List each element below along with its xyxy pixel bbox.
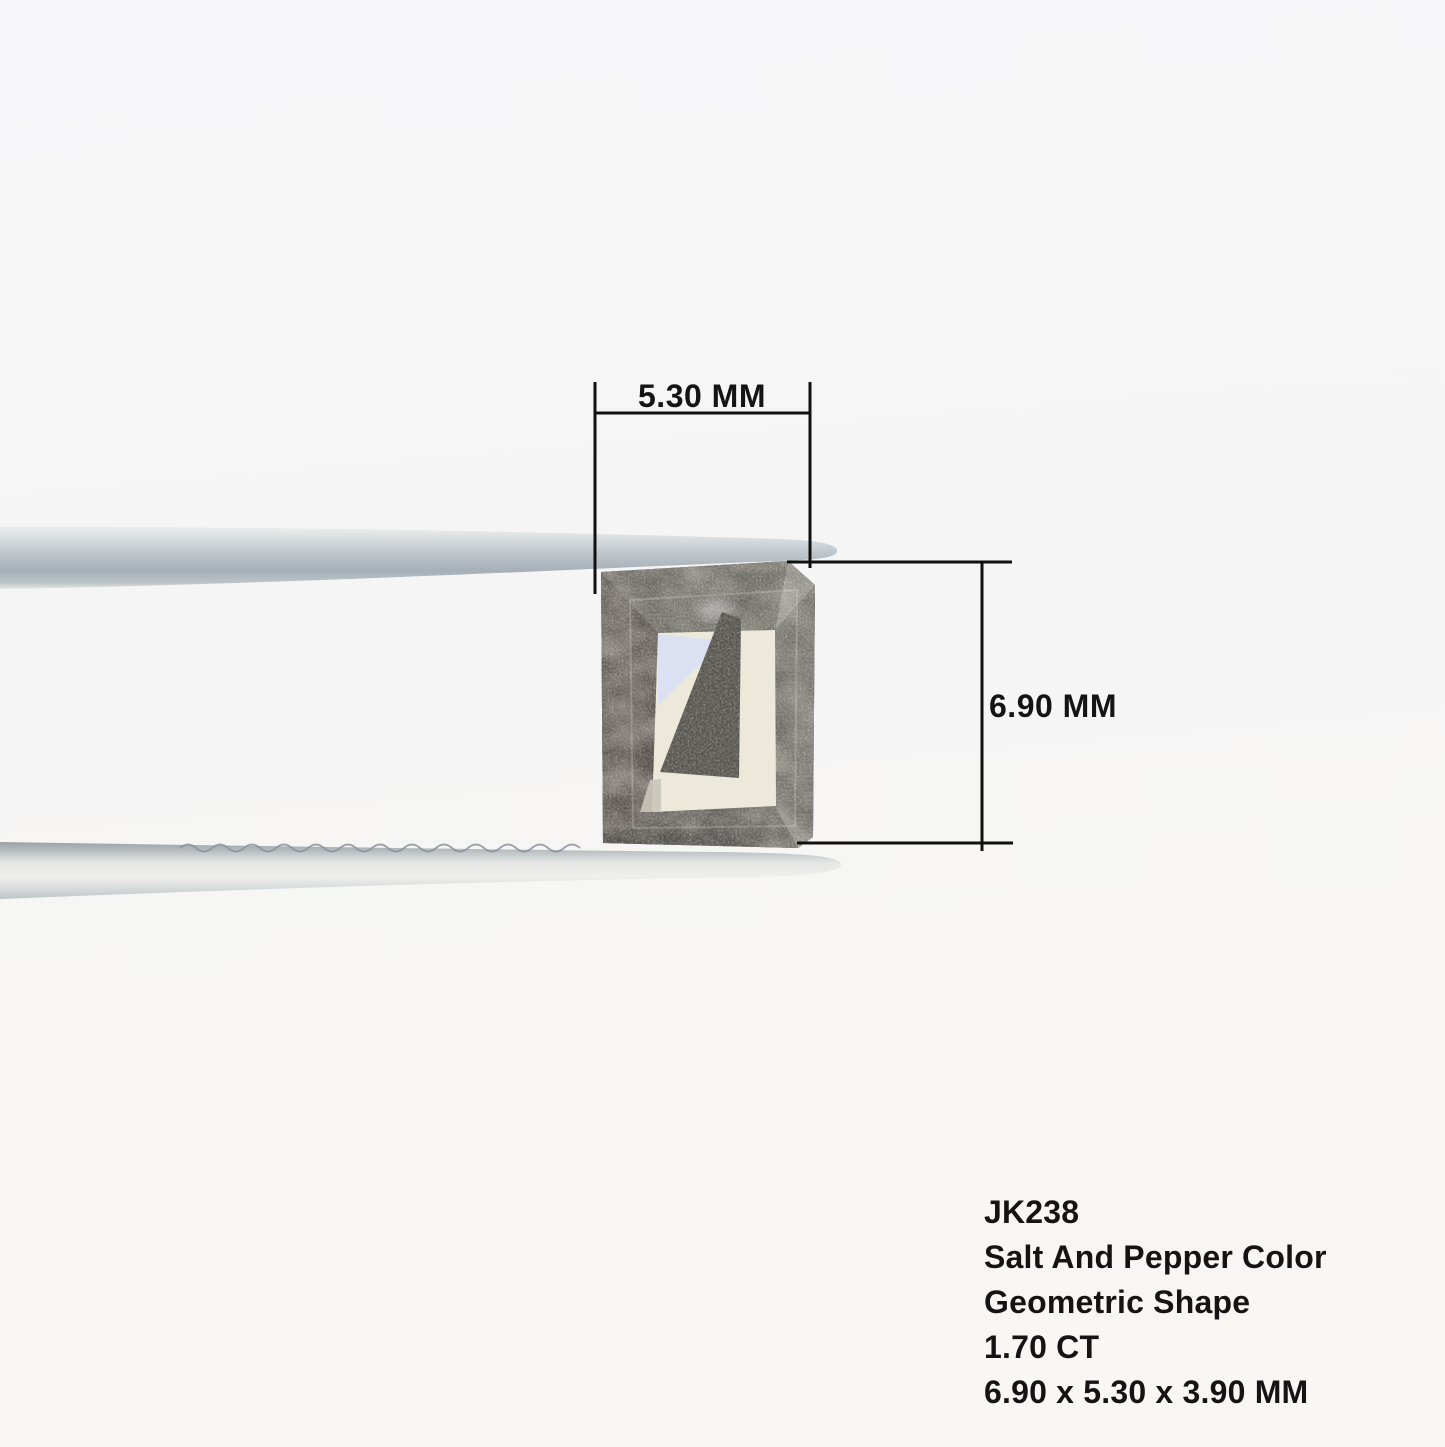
stone-carat: 1.70 CT bbox=[984, 1325, 1327, 1370]
stone-info-block: JK238 Salt And Pepper Color Geometric Sh… bbox=[984, 1190, 1327, 1415]
stone-sku: JK238 bbox=[984, 1190, 1327, 1235]
stone-color: Salt And Pepper Color bbox=[984, 1235, 1327, 1280]
height-measurement-label: 6.90 MM bbox=[989, 688, 1117, 725]
diamond bbox=[590, 550, 825, 860]
stone-dimensions: 6.90 x 5.30 x 3.90 MM bbox=[984, 1370, 1327, 1415]
product-photo-scene: 5.30 MM 6.90 MM JK238 Salt And Pepper Co… bbox=[0, 0, 1445, 1447]
stone-shape: Geometric Shape bbox=[984, 1280, 1327, 1325]
width-measurement-label: 5.30 MM bbox=[593, 378, 811, 415]
tweezers-bottom-arm bbox=[0, 842, 841, 899]
